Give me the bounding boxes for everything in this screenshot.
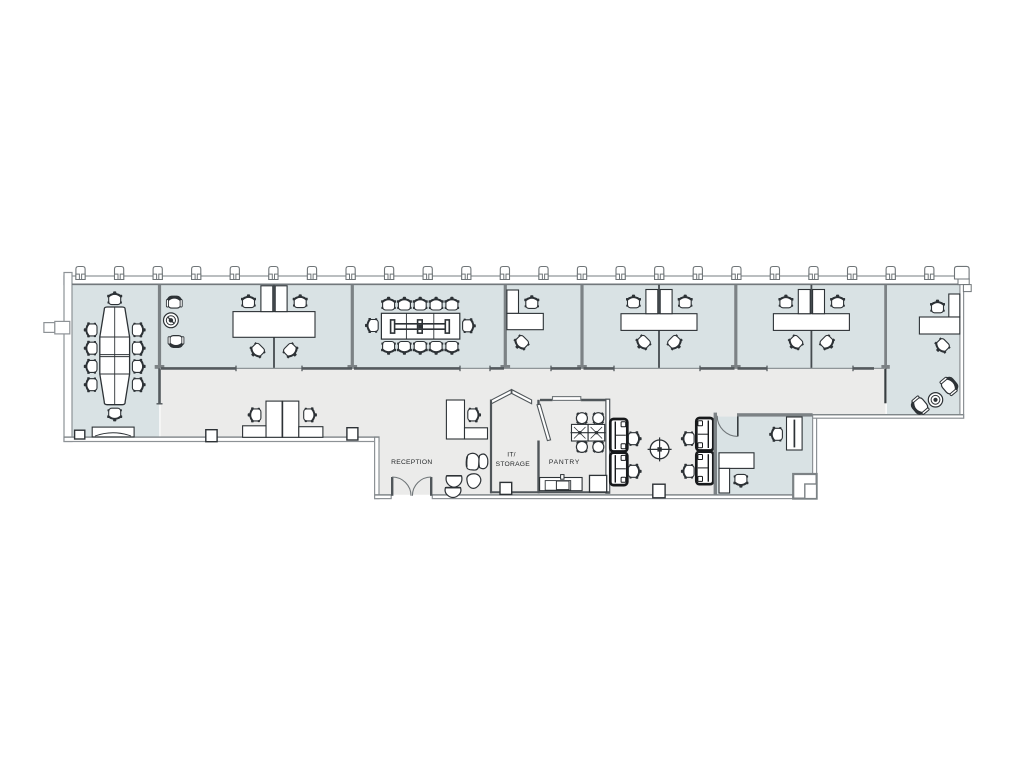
svg-text:IT/: IT/ bbox=[507, 452, 516, 459]
svg-text:RECEPTION: RECEPTION bbox=[391, 459, 432, 466]
svg-text:PANTRY: PANTRY bbox=[549, 459, 580, 466]
svg-text:STORAGE: STORAGE bbox=[496, 461, 531, 468]
